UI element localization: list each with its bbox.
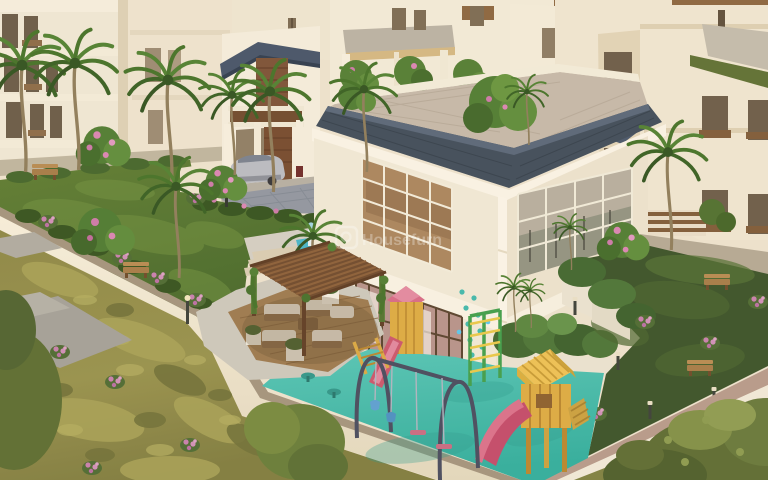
- svg-text:Housefurn: Housefurn: [362, 232, 442, 249]
